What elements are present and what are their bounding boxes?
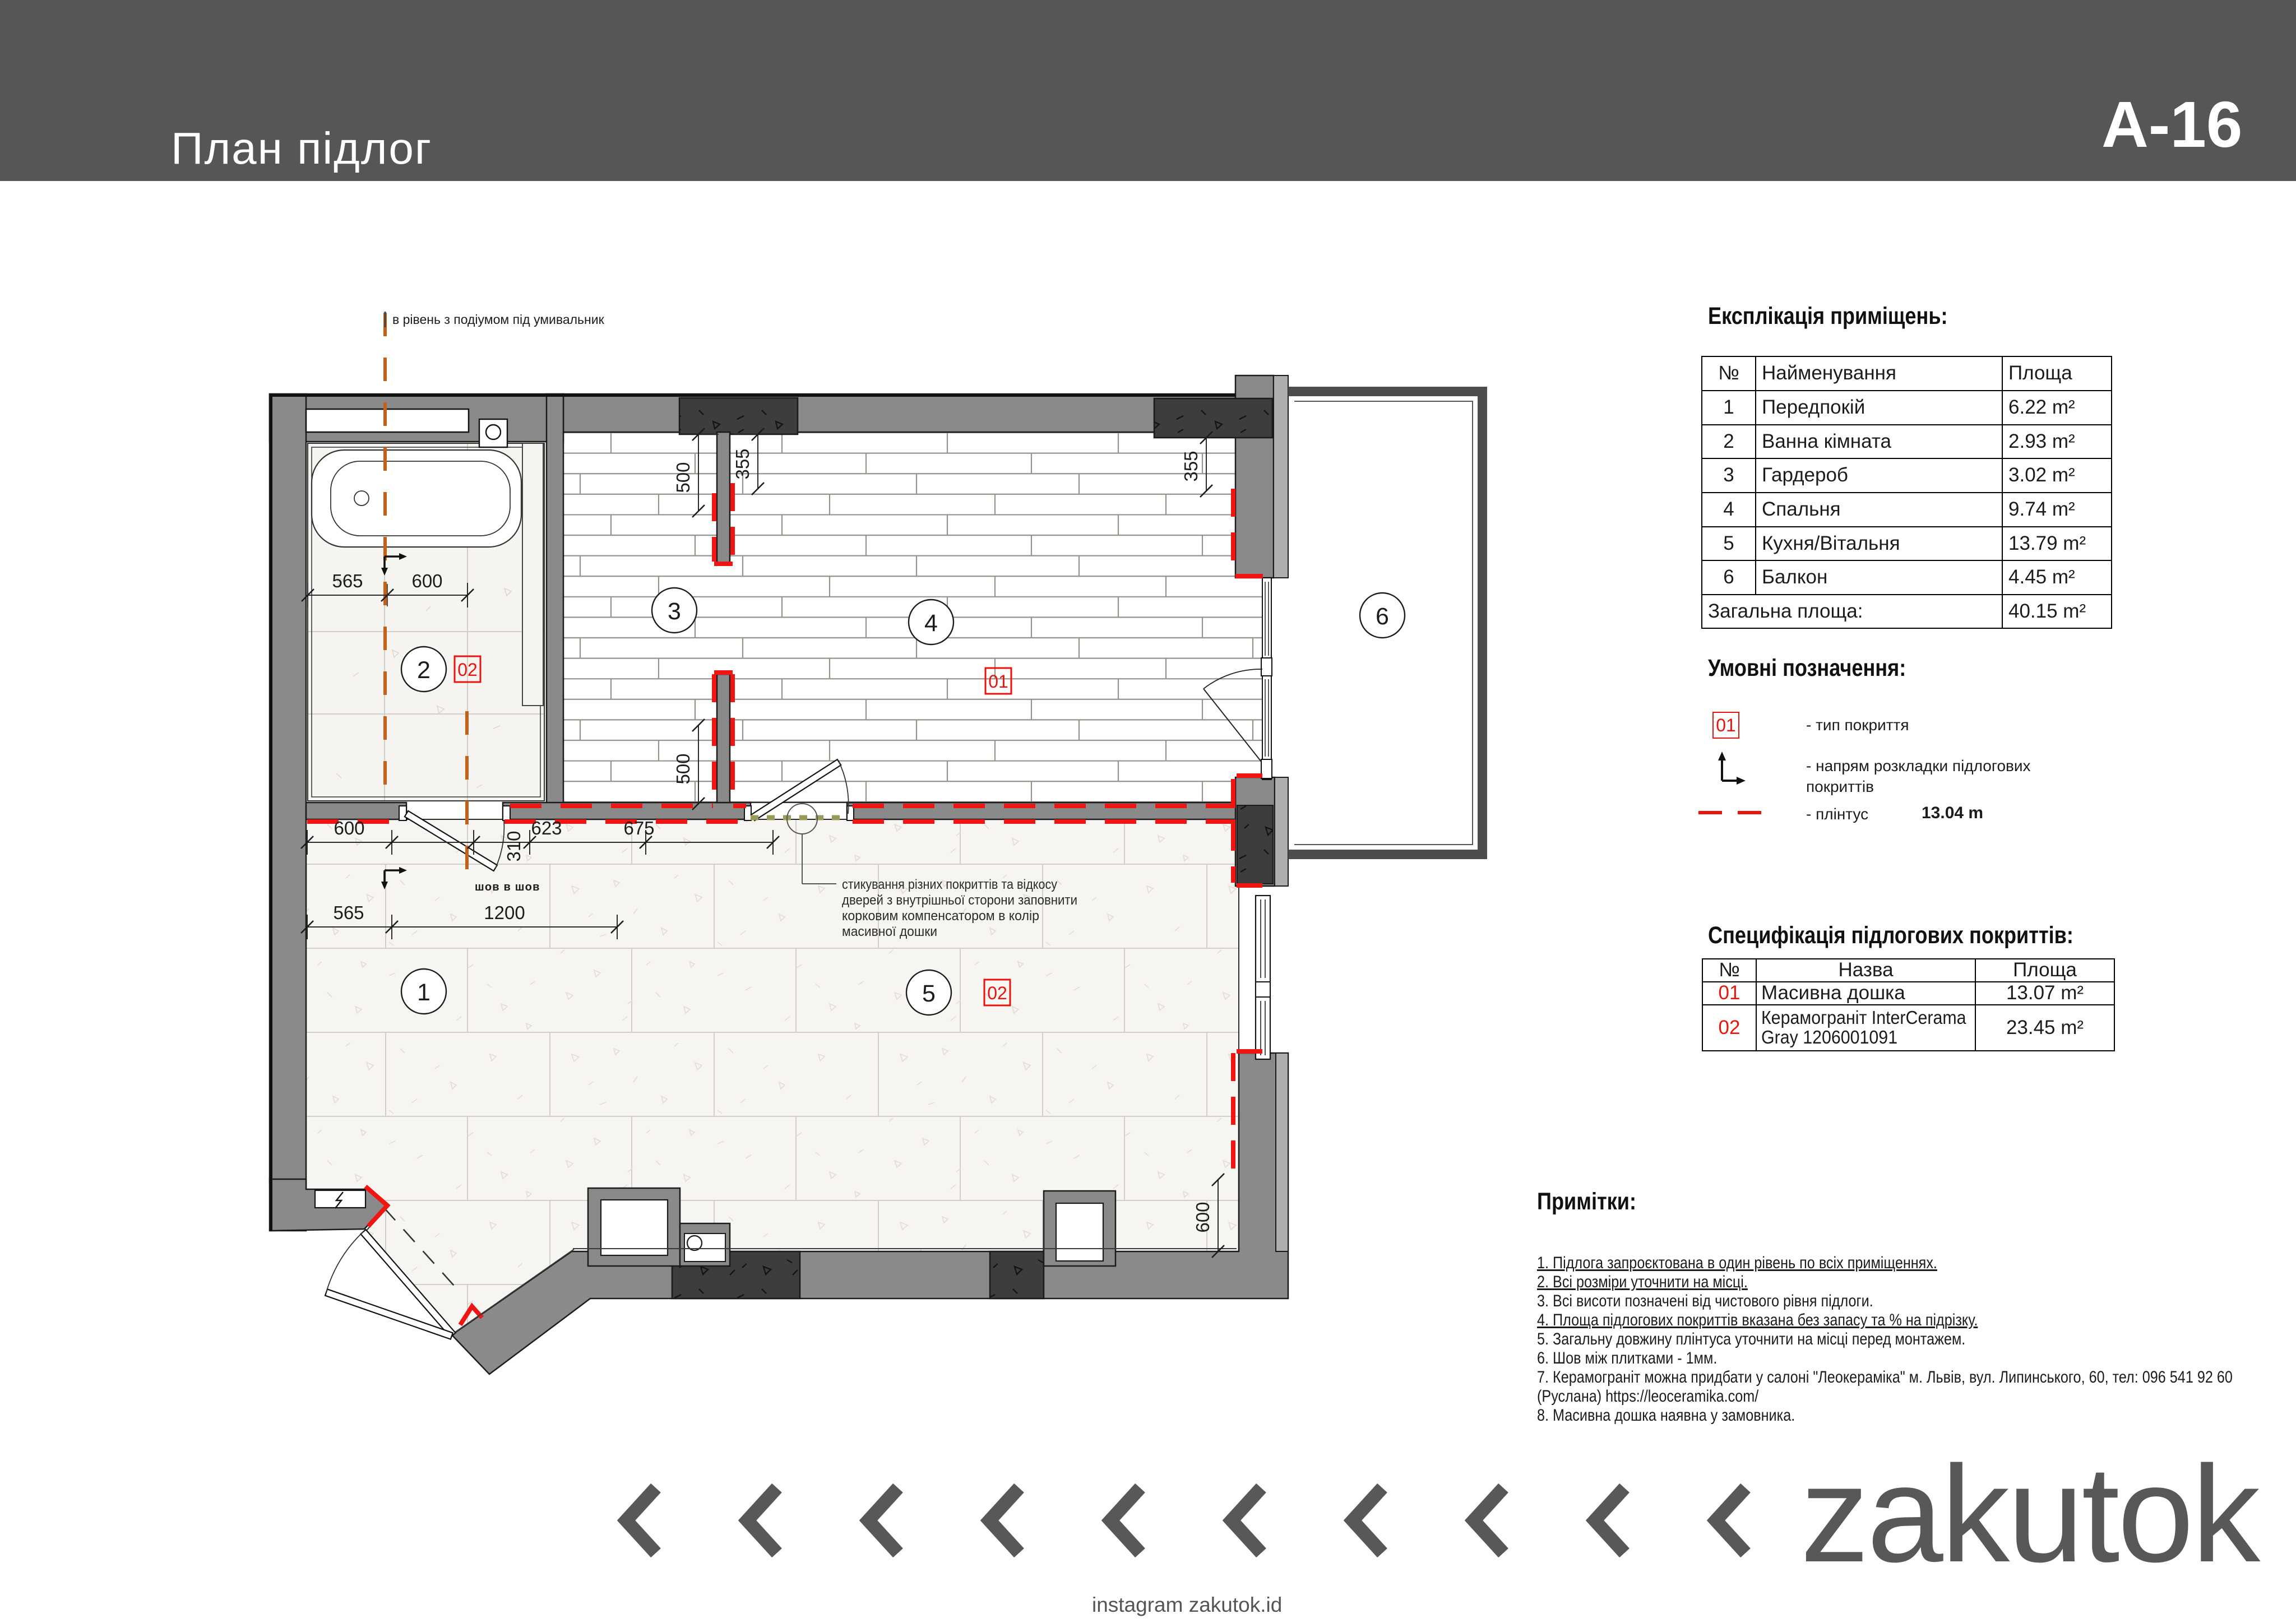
- svg-text:2: 2: [417, 657, 430, 684]
- svg-text:623: 623: [531, 818, 562, 838]
- svg-text:355: 355: [732, 448, 753, 479]
- svg-text:1: 1: [417, 979, 430, 1006]
- svg-text:стикування різних покриттів та: стикування різних покриттів та відкосу: [842, 877, 1057, 892]
- svg-text:600: 600: [411, 571, 442, 591]
- svg-text:500: 500: [673, 753, 693, 784]
- svg-text:600: 600: [334, 818, 364, 838]
- svg-text:675: 675: [623, 818, 654, 838]
- svg-text:корковим компенсатором в колір: корковим компенсатором в колір: [842, 908, 1039, 924]
- svg-text:355: 355: [1181, 451, 1201, 481]
- svg-text:01: 01: [988, 671, 1008, 692]
- svg-text:02: 02: [457, 660, 478, 680]
- svg-text:дверей з внутрішньої сторони з: дверей з внутрішньої сторони заповнити: [842, 893, 1077, 908]
- svg-text:500: 500: [673, 462, 693, 493]
- svg-text:310: 310: [503, 831, 524, 861]
- svg-text:565: 565: [332, 571, 363, 591]
- svg-text:4: 4: [924, 610, 938, 637]
- svg-text:02: 02: [987, 983, 1007, 1003]
- svg-text:565: 565: [333, 902, 364, 923]
- svg-text:600: 600: [1192, 1202, 1213, 1232]
- svg-text:3: 3: [668, 598, 681, 625]
- svg-text:5: 5: [922, 980, 936, 1007]
- svg-text:шов в шов: шов в шов: [475, 881, 540, 893]
- svg-text:1200: 1200: [484, 902, 525, 923]
- svg-text:6: 6: [1376, 603, 1389, 630]
- svg-text:масивної дошки: масивної дошки: [842, 924, 937, 939]
- svg-text:в рівень з подіумом під умивал: в рівень з подіумом під умивальник: [392, 312, 605, 327]
